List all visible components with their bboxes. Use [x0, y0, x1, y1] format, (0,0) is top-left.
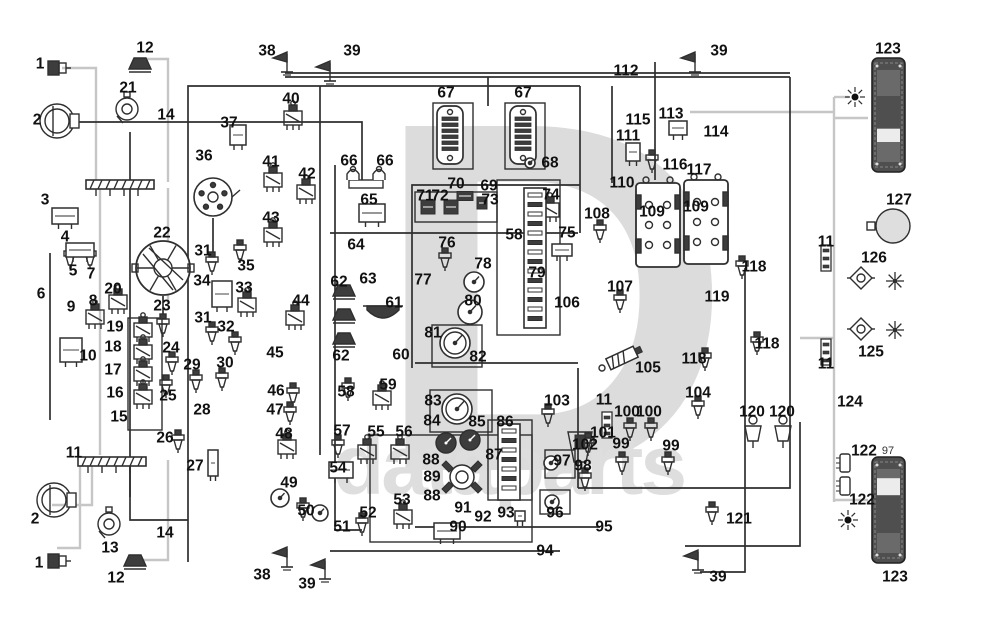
component-number-label: 122 [849, 492, 875, 509]
component-number-label: 47 [266, 402, 283, 419]
component-number-label: 49 [280, 475, 298, 492]
lampsm-glyph [48, 554, 71, 568]
component-number-label: 73 [481, 192, 499, 209]
component-number-label: 54 [329, 460, 347, 477]
component-number-label: 97 [882, 445, 894, 457]
component-number-label: 83 [424, 393, 442, 410]
component-number-label: 94 [536, 543, 554, 560]
diamond-glyph [847, 318, 875, 340]
component-number-label: 91 [454, 500, 472, 517]
harness-box [128, 318, 162, 430]
component-number-label: 65 [360, 192, 378, 209]
component-number-label: 19 [106, 319, 124, 336]
component-number-label: 2 [33, 112, 42, 129]
component-number-label: 45 [266, 345, 284, 362]
component-number-label: 62 [332, 348, 349, 365]
headlamp-glyph [40, 104, 79, 138]
marker-glyph [124, 555, 146, 569]
component-number-label: 24 [162, 340, 180, 357]
component-number-label: 102 [572, 437, 598, 454]
component-number-label: 96 [546, 505, 564, 522]
component-number-label: 89 [423, 469, 441, 486]
component-number-label: 121 [726, 511, 752, 528]
component-number-label: 90 [449, 519, 466, 536]
component-number-label: 14 [156, 525, 174, 542]
gauge-glyph [464, 272, 484, 292]
component-number-label: 42 [298, 166, 315, 183]
component-number-label: 77 [414, 272, 431, 289]
component-number-label: 88 [423, 488, 441, 505]
connpair-glyph [836, 477, 850, 495]
distributor-glyph [194, 178, 240, 216]
component-number-label: 5 [69, 263, 78, 280]
component-number-label: 80 [464, 293, 481, 310]
wire [130, 466, 188, 520]
taillight-glyph [872, 58, 905, 172]
component-number-label: 13 [101, 540, 119, 557]
horn-glyph [116, 92, 138, 123]
diamond-glyph [847, 267, 875, 289]
component-number-label: 88 [422, 452, 440, 469]
gaugedark-glyph [436, 433, 456, 453]
component-number-label: 67 [514, 85, 531, 102]
component-number-label: 104 [685, 385, 711, 402]
component-number-label: 107 [607, 279, 633, 296]
component-number-label: 109 [639, 204, 665, 221]
component-number-label: 1 [36, 56, 45, 73]
component-number-label: 20 [104, 281, 121, 298]
component-number-label: 76 [438, 235, 456, 252]
connbar-glyph [86, 180, 154, 196]
component-number-label: 37 [220, 115, 237, 132]
connpair-glyph [836, 454, 850, 472]
component-number-label: 60 [392, 347, 409, 364]
component-number-label: 67 [437, 85, 454, 102]
component-number-label: 29 [183, 357, 201, 374]
component-number-label: 124 [837, 394, 863, 411]
component-number-label: 113 [658, 106, 683, 123]
component-number-label: 26 [156, 430, 174, 447]
component-number-label: 12 [107, 570, 124, 587]
component-number-label: 55 [367, 424, 385, 441]
component-number-label: 63 [359, 271, 377, 288]
flag-glyph [273, 52, 293, 75]
component-number-label: 92 [474, 509, 491, 526]
lampburst-glyph [845, 87, 865, 107]
component-number-label: 123 [882, 569, 908, 586]
component-number-label: 11 [596, 392, 613, 409]
motorstar-glyph [886, 321, 904, 339]
component-number-label: 87 [485, 447, 502, 464]
component-number-label: 119 [704, 289, 729, 306]
component-number-label: 85 [468, 414, 486, 431]
component-number-label: 7 [87, 266, 96, 283]
component-number-label: 39 [710, 43, 728, 60]
component-number-label: 123 [875, 41, 901, 58]
component-number-label: 120 [769, 404, 795, 421]
component-number-label: 10 [79, 348, 96, 365]
sensor-glyph [284, 402, 296, 425]
component-number-label: 11 [818, 356, 835, 373]
component-number-label: 58 [337, 384, 355, 401]
component-number-label: 39 [709, 569, 727, 586]
component-number-label: 50 [297, 503, 314, 520]
component-number-label: 84 [423, 413, 441, 430]
component-number-label: 31 [194, 243, 212, 260]
component-number-label: 40 [282, 91, 299, 108]
gauge-glyph [440, 328, 470, 358]
component-number-label: 68 [541, 155, 559, 172]
component-number-label: 44 [292, 293, 310, 310]
component-number-label: 82 [469, 349, 486, 366]
battery-glyph [636, 177, 680, 267]
component-number-label: 56 [395, 424, 413, 441]
component-number-label: 31 [194, 310, 212, 327]
component-number-label: 8 [89, 293, 98, 310]
marker-glyph [333, 309, 355, 323]
plugpair-glyph [347, 167, 385, 189]
component-number-label: 112 [613, 63, 638, 80]
component-number-label: 66 [376, 153, 394, 170]
component-number-label: 116 [662, 157, 687, 174]
component-number-label: 108 [584, 206, 610, 223]
component-number-label: 1 [35, 555, 44, 572]
component-number-label: 81 [424, 325, 442, 342]
lampburst-glyph [838, 510, 858, 530]
component-number-label: 51 [333, 519, 351, 536]
marker-glyph [129, 58, 151, 72]
component-number-label: 62 [330, 274, 347, 291]
component-number-label: 57 [333, 423, 350, 440]
component-number-label: 120 [739, 404, 765, 421]
panel-glyph [524, 188, 546, 328]
lampsm-glyph [48, 61, 71, 75]
component-number-label: 48 [275, 426, 293, 443]
component-number-label: 39 [343, 43, 361, 60]
component-number-label: 16 [106, 385, 124, 402]
component-number-label: 3 [41, 192, 50, 209]
component-number-label: 126 [861, 250, 887, 267]
component-number-label: 25 [159, 388, 177, 405]
component-number-label: 2 [31, 511, 40, 528]
component-number-label: 36 [195, 148, 213, 165]
gaugedark-glyph [460, 430, 480, 450]
sendercup-glyph [775, 416, 791, 448]
component-number-label: 103 [544, 393, 570, 410]
box-glyph [212, 281, 232, 312]
component-number-label: 109 [683, 199, 709, 216]
component-number-label: 75 [558, 225, 576, 242]
component-number-label: 35 [237, 258, 255, 275]
component-number-label: 28 [193, 402, 211, 419]
component-number-label: 93 [497, 505, 515, 522]
component-number-label: 11 [66, 445, 83, 462]
component-number-label: 118 [754, 336, 779, 353]
component-number-label: 99 [662, 438, 680, 455]
component-number-label: 32 [217, 319, 234, 336]
fusebox-glyph [510, 106, 536, 164]
component-number-label: 38 [258, 43, 276, 60]
component-number-label: 18 [104, 339, 122, 356]
headlamp-glyph [37, 483, 76, 517]
relay-glyph [134, 313, 152, 342]
component-number-label: 11 [818, 234, 835, 251]
flag-glyph [273, 547, 293, 570]
component-number-label: 33 [235, 280, 253, 297]
component-number-label: 125 [858, 344, 884, 361]
component-number-label: 58 [505, 227, 523, 244]
component-number-label: 105 [635, 360, 661, 377]
component-number-label: 61 [385, 295, 403, 312]
component-number-label: 97 [553, 453, 570, 470]
box-glyph [66, 243, 94, 262]
fusebox-glyph [437, 106, 463, 164]
component-number-label: 22 [153, 225, 170, 242]
darkrect-glyph [457, 192, 473, 201]
component-number-label: 122 [851, 443, 877, 460]
connbar-glyph [78, 457, 146, 473]
component-number-label: 74 [542, 187, 560, 204]
component-number-label: 70 [447, 176, 464, 193]
box-glyph [208, 450, 218, 481]
component-number-label: 106 [554, 295, 580, 312]
component-number-label: 4 [61, 229, 70, 246]
component-number-label: 95 [595, 519, 613, 536]
gauge-glyph [525, 158, 535, 168]
component-number-label: 27 [186, 458, 203, 475]
component-number-label: 43 [262, 210, 280, 227]
component-number-label: 78 [474, 256, 492, 273]
component-number-label: 64 [347, 237, 365, 254]
component-number-label: 30 [216, 355, 233, 372]
wiring-diagram-page: Ddataparts112211423839336374041424366666… [0, 0, 998, 633]
component-number-label: 72 [431, 188, 448, 205]
component-number-label: 17 [104, 362, 121, 379]
component-number-label: 114 [703, 124, 728, 141]
component-number-label: 15 [110, 409, 128, 426]
component-number-label: 100 [636, 404, 662, 421]
component-number-label: 38 [253, 567, 271, 584]
component-number-label: 115 [625, 112, 650, 129]
component-number-label: 21 [119, 80, 137, 97]
component-number-label: 9 [67, 299, 76, 316]
component-number-label: 23 [153, 298, 171, 315]
component-number-label: 12 [136, 40, 153, 57]
hornbig-glyph [867, 209, 910, 243]
sendercup-glyph [745, 416, 761, 448]
box-glyph [52, 208, 78, 229]
alternator-glyph [132, 241, 194, 295]
sensor-glyph [172, 430, 184, 453]
component-number-label: 14 [157, 107, 175, 124]
wire-light [135, 460, 168, 560]
component-number-label: 59 [379, 377, 397, 394]
component-number-label: 117 [686, 162, 711, 179]
component-number-label: 118 [741, 259, 766, 276]
component-number-label: 52 [359, 505, 376, 522]
component-number-label: 53 [393, 492, 411, 509]
wiring-diagram-svg: Ddataparts112211423839336374041424366666… [0, 0, 998, 633]
component-number-label: 111 [616, 128, 641, 145]
component-number-label: 39 [298, 576, 316, 593]
battery-glyph [684, 174, 728, 264]
component-number-label: 46 [267, 383, 285, 400]
component-number-label: 110 [609, 175, 634, 192]
component-number-label: 98 [574, 458, 592, 475]
component-number-label: 66 [340, 153, 358, 170]
taillight-glyph [872, 457, 905, 563]
horn-glyph [98, 507, 120, 538]
component-number-label: 86 [496, 414, 514, 431]
component-number-label: 6 [37, 286, 46, 303]
marker-glyph [333, 333, 355, 347]
component-number-label: 118 [681, 351, 706, 368]
component-number-label: 79 [528, 265, 546, 282]
gauge-glyph [271, 489, 289, 507]
component-number-label: 127 [886, 192, 912, 209]
component-number-label: 41 [262, 154, 280, 171]
component-number-label: 34 [193, 273, 211, 290]
motorstar-glyph [886, 272, 904, 290]
